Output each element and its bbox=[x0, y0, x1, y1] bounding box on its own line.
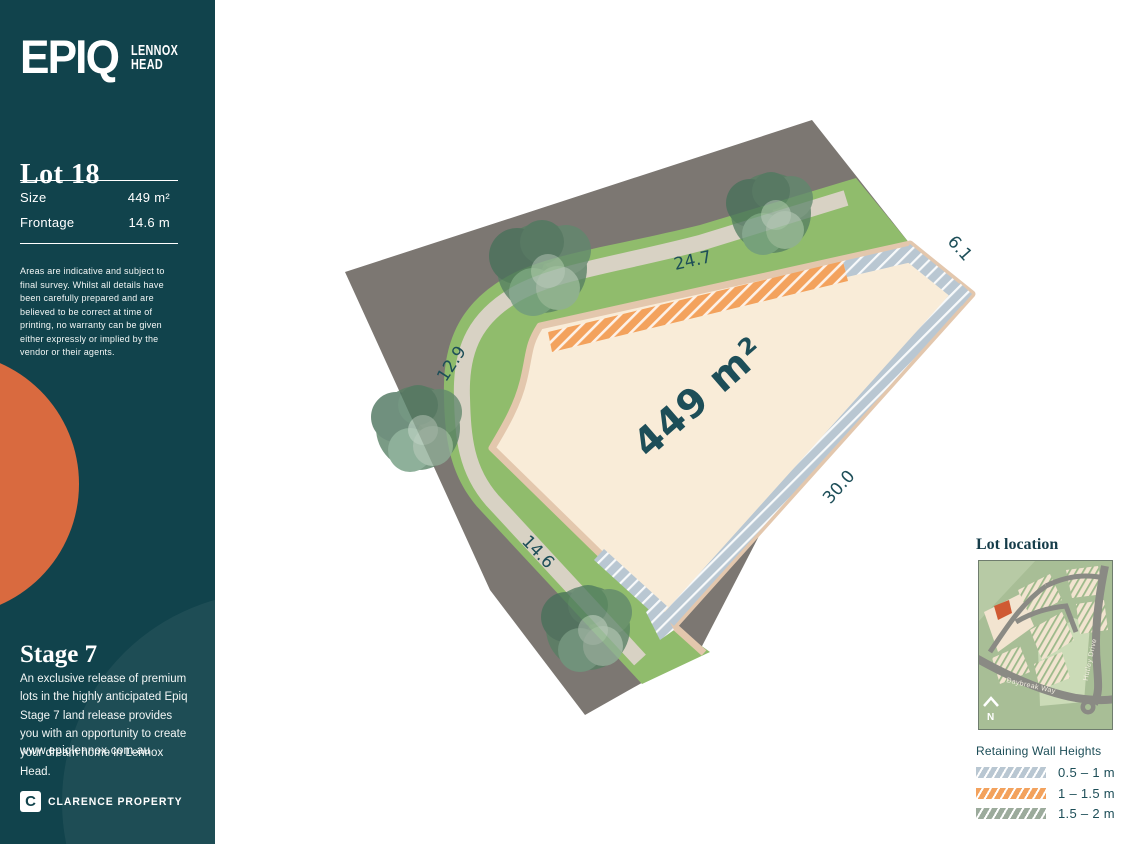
divider bbox=[20, 180, 178, 181]
epiq-logo-subtext: LENNOX HEAD bbox=[131, 44, 178, 73]
stat-label-size: Size bbox=[20, 190, 47, 205]
legend-swatch-high bbox=[976, 808, 1046, 819]
stat-row-size: Size 449 m² bbox=[20, 190, 170, 205]
stage-title: Stage 7 bbox=[20, 641, 97, 669]
lot-title: Lot 18 bbox=[20, 159, 100, 191]
dimension-south-east: 30.0 bbox=[819, 467, 859, 509]
decorative-orange-circle bbox=[0, 352, 79, 616]
legend-swatch-low bbox=[976, 767, 1046, 778]
clarence-c-icon: C bbox=[20, 791, 41, 812]
legend-row: 1 – 1.5 m bbox=[976, 786, 1121, 801]
svg-text:N: N bbox=[987, 712, 994, 723]
stat-label-frontage: Frontage bbox=[20, 215, 74, 230]
epiq-logo: EPIQ LENNOX HEAD bbox=[20, 36, 197, 78]
legend-swatch-mid bbox=[976, 788, 1046, 799]
stat-value-frontage: 14.6 m bbox=[128, 215, 170, 230]
sidebar: EPIQ LENNOX HEAD Lot 18 Size 449 m² Fron… bbox=[0, 0, 215, 844]
flyer-page: 449 m² 24.7 6.1 30.0 14.6 12.9 EPIQ LENN… bbox=[0, 0, 1125, 844]
legend-label-low: 0.5 – 1 m bbox=[1058, 765, 1115, 780]
legend-label-high: 1.5 – 2 m bbox=[1058, 806, 1115, 821]
disclaimer-text: Areas are indicative and subject to fina… bbox=[20, 265, 172, 360]
dimension-north-east: 6.1 bbox=[943, 232, 976, 265]
legend-label-mid: 1 – 1.5 m bbox=[1058, 786, 1115, 801]
map-roundabout-center bbox=[1085, 704, 1091, 710]
retaining-wall-legend: Retaining Wall Heights 0.5 – 1 m 1 – 1.5… bbox=[976, 744, 1121, 827]
stat-value-size: 449 m² bbox=[128, 190, 170, 205]
clarence-wordmark: CLARENCE PROPERTY bbox=[48, 796, 183, 808]
legend-row: 1.5 – 2 m bbox=[976, 806, 1121, 821]
stat-row-frontage: Frontage 14.6 m bbox=[20, 215, 170, 230]
epiq-logo-subtext-line2: HEAD bbox=[131, 58, 178, 72]
lot-location-map: Daybreak Way Hutley Drive N bbox=[978, 560, 1113, 730]
divider bbox=[20, 243, 178, 244]
epiq-logo-wordmark: EPIQ bbox=[20, 36, 118, 78]
lot-location-title: Lot location bbox=[976, 536, 1058, 554]
legend-title: Retaining Wall Heights bbox=[976, 744, 1121, 758]
stage-description: An exclusive release of premium lots in … bbox=[20, 670, 190, 782]
legend-row: 0.5 – 1 m bbox=[976, 765, 1121, 780]
website-link[interactable]: www.epiqlennox.com.au bbox=[20, 745, 150, 757]
clarence-property-logo: C CLARENCE PROPERTY bbox=[20, 791, 190, 812]
